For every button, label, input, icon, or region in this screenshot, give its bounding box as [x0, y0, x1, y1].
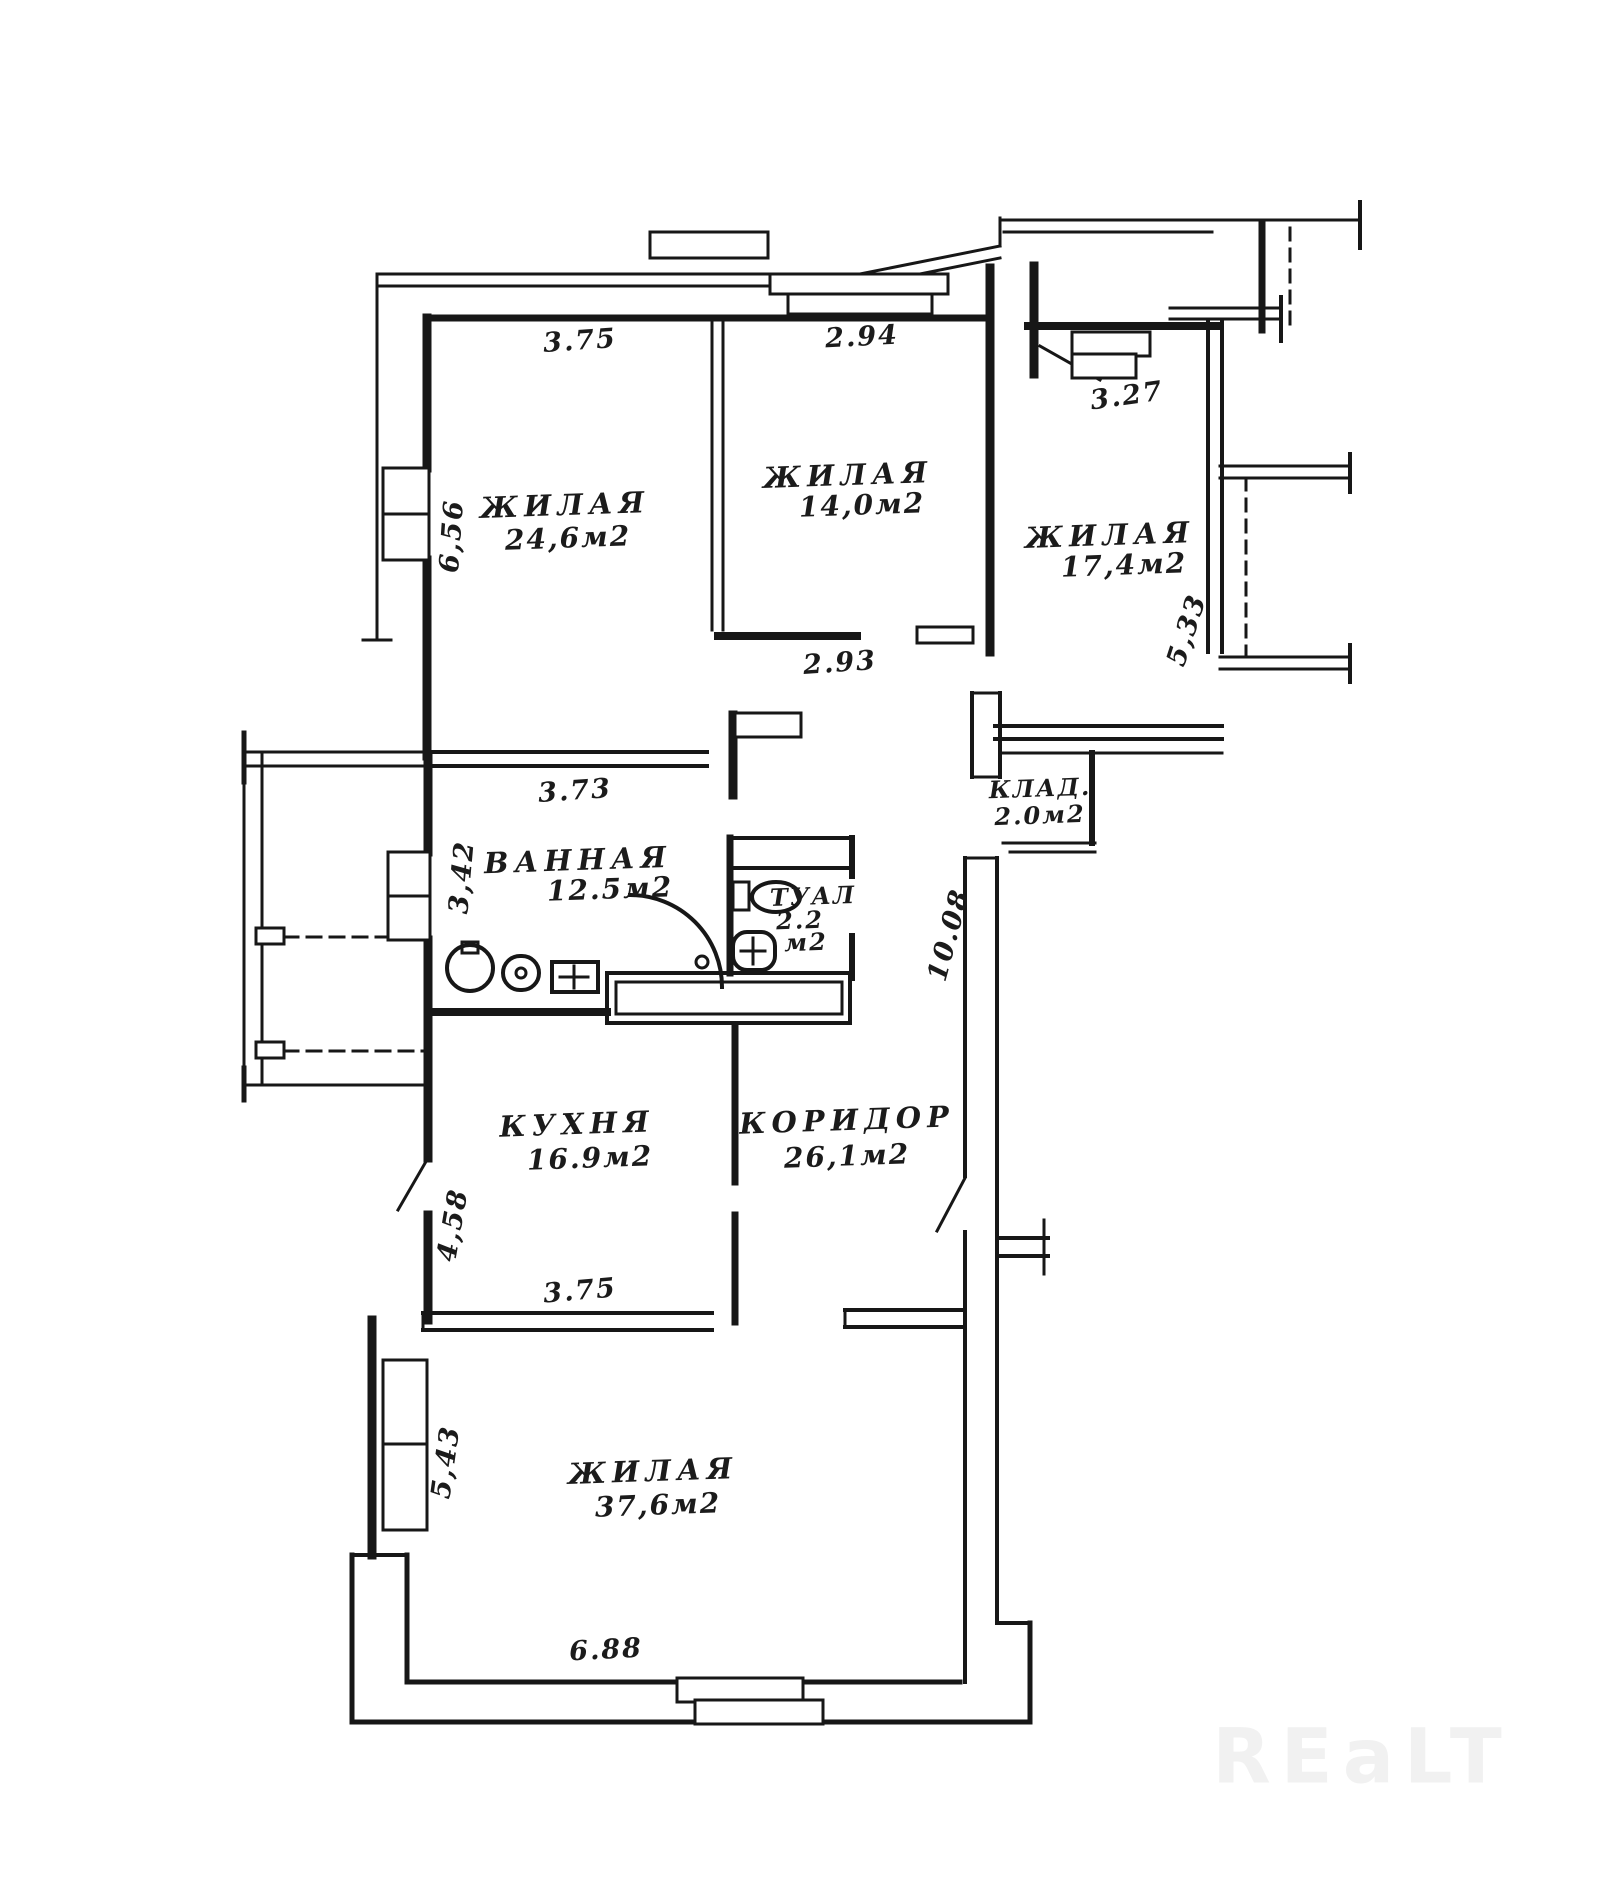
floor-plan-page: ЖИЛАЯ 24,6м2 ЖИЛАЯ 14,0м2 ЖИЛАЯ 17,4м2 В… — [0, 0, 1600, 1877]
kitchen-label: КУХНЯ — [499, 1104, 655, 1143]
balcony-door-leaf — [398, 1158, 428, 1210]
stove-icon — [552, 962, 598, 992]
neighbour-wall-stubs — [1220, 454, 1350, 682]
washbasin-icon — [447, 942, 493, 991]
realt-watermark: REaLT — [1212, 1712, 1511, 1801]
dim-room4-top: 3.75 — [542, 1272, 618, 1309]
bathroom-area: 12.5м2 — [546, 870, 673, 907]
room4-door-leaf — [937, 1178, 965, 1231]
dim-room1-left: 6,56 — [434, 498, 470, 574]
dim-room4-bottom: 6.88 — [568, 1633, 643, 1668]
bathtub-icon — [607, 973, 850, 1023]
corridor-walls — [845, 693, 1048, 1682]
toilet-sink-icon — [733, 932, 775, 970]
room1-walls — [383, 318, 990, 795]
toilet-area-unit: м2 — [784, 927, 829, 958]
room2-area: 14,0м2 — [798, 486, 925, 523]
corridor-area: 26,1м2 — [783, 1137, 910, 1174]
dim-room1-top: 3.75 — [542, 323, 618, 359]
exterior-walls — [363, 202, 1360, 640]
room4-walls — [352, 1320, 1030, 1724]
bidet-icon — [503, 956, 539, 990]
room4-area: 37,6м2 — [594, 1486, 721, 1523]
dim-bath-left: 3,42 — [443, 839, 480, 915]
room3-area: 17,4м2 — [1060, 546, 1187, 583]
room1-area: 24,6м2 — [504, 519, 631, 556]
storage-area: 2.0м2 — [994, 799, 1086, 831]
room4-label: ЖИЛАЯ — [567, 1451, 738, 1491]
kitchen-area: 16.9м2 — [526, 1139, 653, 1176]
dim-bath-top: 3.73 — [537, 773, 613, 809]
dim-room2-top: 2.94 — [824, 320, 899, 355]
dim-room2-bottom: 2.93 — [802, 645, 878, 681]
